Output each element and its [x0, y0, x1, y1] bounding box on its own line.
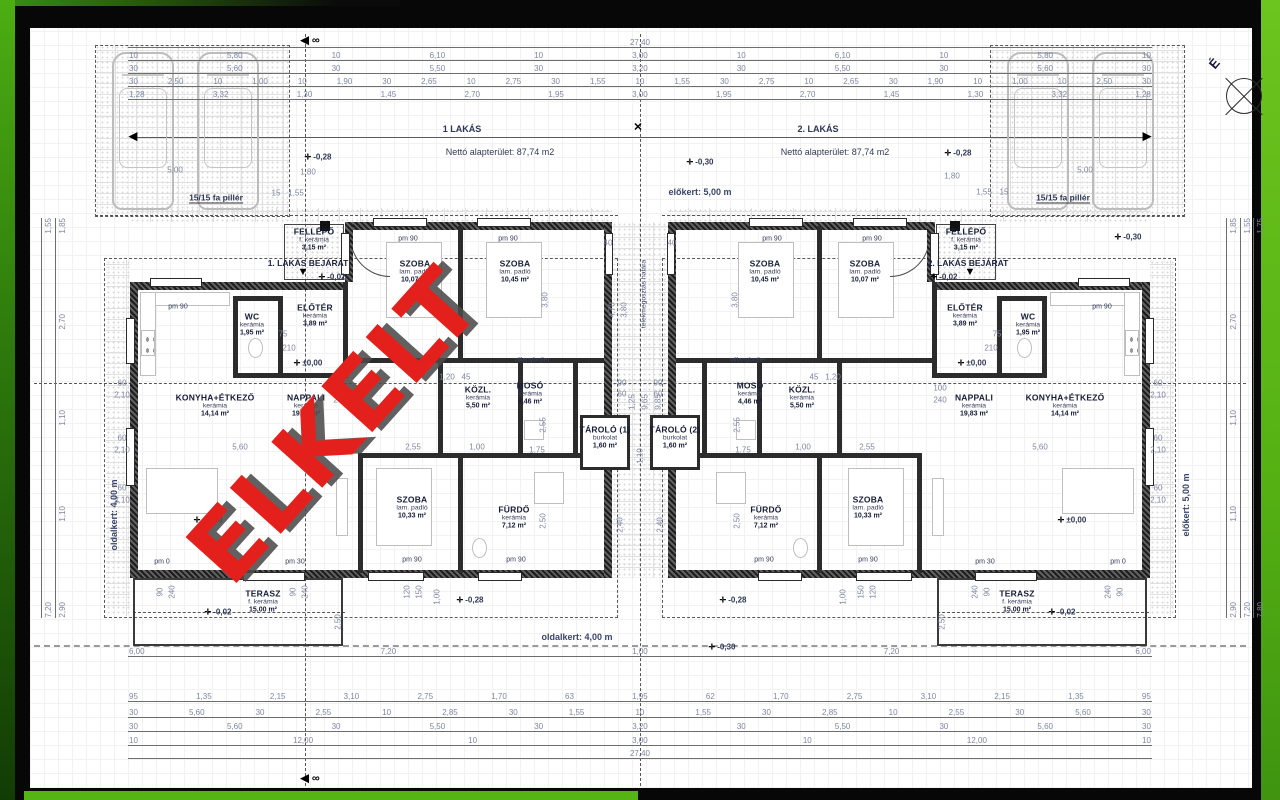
- dimension-label: 2,55: [539, 417, 548, 433]
- dimension-value: 10: [297, 77, 308, 86]
- dimension-value: 30: [533, 722, 544, 731]
- partition-wall: [518, 360, 523, 456]
- dimension-value: 30: [938, 64, 949, 73]
- dimension-label: 9,85: [654, 394, 663, 410]
- dimension-value: 1,10: [58, 410, 67, 426]
- dimension-value: 30: [331, 722, 342, 731]
- dimension-value: 2,65: [842, 77, 860, 86]
- level-marker: ✛-0,28: [305, 153, 332, 162]
- dimension-value: 2,85: [821, 708, 839, 717]
- furniture: [1062, 468, 1134, 514]
- parapet-label: pm 90: [858, 557, 877, 564]
- level-marker: ✛±0,00: [958, 359, 987, 368]
- level-cross-icon: ✛: [709, 643, 716, 652]
- dimension-label: 90: [654, 379, 663, 388]
- dimension-value: 10: [128, 51, 139, 60]
- window: [853, 218, 907, 227]
- dimension-value: 5,50: [429, 722, 447, 731]
- dimension-label: 1,20: [825, 373, 841, 382]
- room-floor: kerámia: [750, 515, 781, 523]
- parapet-label: pm 90: [762, 236, 781, 243]
- dimension-label: 90: [289, 588, 298, 597]
- dimension-label: 90: [618, 379, 627, 388]
- room-floor: lam. padló: [849, 269, 880, 277]
- room-label: MOSÓkerámia4,46 m²: [517, 381, 544, 408]
- room-floor: f. kerámia: [946, 237, 987, 245]
- dimension-label: 240: [301, 585, 310, 598]
- dimension-value: 2,70: [463, 90, 481, 99]
- dimension-value: 2,75: [416, 692, 434, 701]
- window: [1078, 278, 1130, 287]
- dimension-label: 1,00: [839, 589, 848, 605]
- level-value: ±0,00: [1066, 516, 1086, 525]
- site-label: villanybojler: [514, 357, 550, 364]
- room-area: 7,12 m²: [498, 523, 529, 531]
- partition-wall: [458, 453, 463, 573]
- level-value: -0,28: [465, 596, 483, 605]
- room-floor: lam. padló: [749, 269, 780, 277]
- window: [1145, 318, 1154, 364]
- room-area: 5,50 m²: [789, 403, 816, 411]
- room-name: WC: [240, 312, 264, 322]
- dimension-label: 2,50: [733, 513, 742, 529]
- dimension-value: 5,50: [834, 722, 852, 731]
- room-floor: lam. padló: [852, 505, 883, 513]
- level-cross-icon: ✛: [457, 596, 464, 605]
- dimension-value: 30: [128, 708, 139, 717]
- level-value: -0,30: [717, 643, 735, 652]
- room-floor: kerámia: [240, 322, 264, 330]
- site-label: villanybojler: [730, 357, 766, 364]
- dimension-value: 10: [635, 77, 646, 86]
- dimension-label: 15: [272, 189, 281, 198]
- dimension-label: 90: [1116, 588, 1125, 597]
- room-name: ELŐTÉR: [947, 303, 983, 313]
- dimension-row: 305,60302,55102,85301,55101,55302,85102,…: [128, 706, 1152, 718]
- dimension-column: 1,557,20: [41, 218, 54, 618]
- room-name: SZOBA: [849, 259, 880, 269]
- partition-wall: [233, 296, 283, 301]
- dimension-label: 3,80: [541, 292, 550, 308]
- level-value: -0,02: [939, 273, 957, 282]
- dimension-label: 1,75: [735, 446, 751, 455]
- dimension-label: 60: [118, 379, 127, 388]
- dimension-value: 5,60: [1074, 708, 1092, 717]
- level-marker: ✛-0,30: [1115, 233, 1142, 242]
- room-floor: kerámia: [737, 391, 764, 399]
- dimension-value: 5,60: [1036, 64, 1054, 73]
- dimension-label: 60: [618, 390, 627, 399]
- dimension-value: 2,50: [167, 77, 185, 86]
- window: [368, 572, 424, 581]
- dimension-value: 2,55: [315, 708, 333, 717]
- dimension-row: 27,40: [128, 36, 1152, 48]
- room-label: SZOBAlam. padló10,33 m²: [396, 495, 427, 522]
- room-name: FÜRDŐ: [498, 505, 529, 515]
- window: [126, 428, 135, 486]
- room-label: MOSÓkerámia4,46 m²: [737, 381, 764, 408]
- dimension-value: 1,10: [1229, 410, 1238, 426]
- partition-wall: [932, 282, 937, 378]
- frame-green-top: [0, 0, 400, 6]
- site-label: 15/15 fa pillér: [1036, 193, 1090, 204]
- dimension-label: 2,10: [1150, 496, 1166, 505]
- dimension-value: 95: [128, 692, 139, 701]
- dimension-value: 2,75: [846, 692, 864, 701]
- room-floor: kerámia: [955, 403, 993, 411]
- dimension-value: 10: [212, 77, 223, 86]
- dimension-value: 10: [1057, 77, 1068, 86]
- room-name: FELLÉPŐ: [294, 227, 335, 237]
- room-name: TÁROLÓ (1): [580, 425, 631, 435]
- dimension-value: 10: [938, 51, 949, 60]
- dimension-value: 1,55: [673, 77, 691, 86]
- partition-wall: [917, 453, 922, 573]
- dimension-row: 302,50101,00101,90302,65102,75301,55101,…: [128, 75, 1152, 87]
- dimension-value: 10: [888, 708, 899, 717]
- level-cross-icon: ✛: [1049, 608, 1056, 617]
- dimension-label: 150: [857, 585, 866, 598]
- dimension-label: 60: [118, 434, 127, 443]
- room-floor: burkolat: [650, 435, 701, 443]
- room-area: 3,15 m²: [946, 245, 987, 253]
- dimension-label: 1,80: [300, 168, 316, 177]
- level-marker: ✛-0,28: [720, 596, 747, 605]
- dimension-row: 105,80106,10103,00106,10105,8010: [128, 49, 1152, 61]
- dimension-value: 30: [381, 77, 392, 86]
- dimension-value: 1,00: [631, 647, 649, 656]
- dimension-value: 30: [1141, 722, 1152, 731]
- dimension-value: 5,60: [226, 64, 244, 73]
- room-area: 19,83 m²: [955, 411, 993, 419]
- dimension-value: 12,00: [966, 736, 988, 745]
- dimension-value: 2,85: [441, 708, 459, 717]
- furniture: [932, 478, 944, 536]
- dimension-row: 6,007,201,007,206,00: [128, 645, 1152, 657]
- room-label: KONYHA+ÉTKEZŐkerámia14,14 m²: [1026, 393, 1105, 420]
- room-label: TÁROLÓ (2)burkolat1,60 m²: [650, 425, 701, 452]
- room-label: ELŐTÉRkerámia3,89 m²: [947, 303, 983, 330]
- room-name: MOSÓ: [737, 381, 764, 391]
- room-floor: kerámia: [1016, 322, 1040, 330]
- furniture: [716, 472, 746, 504]
- dimension-value: 6,00: [128, 647, 146, 656]
- dimension-label: 40: [604, 239, 613, 248]
- level-marker: ✛-0,28: [457, 596, 484, 605]
- room-floor: kerámia: [1026, 403, 1105, 411]
- room-floor: kerámia: [947, 313, 983, 321]
- window: [749, 218, 803, 227]
- partition-wall: [933, 373, 1047, 378]
- parapet-label: pm 90: [506, 557, 525, 564]
- room-floor: kerámia: [176, 403, 255, 411]
- partition-wall: [757, 360, 762, 456]
- dimension-value: 10: [466, 77, 477, 86]
- dimension-value: 10: [803, 77, 814, 86]
- dimension-label: 1,00: [469, 443, 485, 452]
- partition-wall: [676, 453, 922, 458]
- frame-green-left-strip: [0, 0, 15, 800]
- dimension-label: 240: [933, 396, 946, 405]
- window: [758, 572, 802, 581]
- dimension-value: 5,60: [226, 722, 244, 731]
- dimension-label: 45: [810, 373, 819, 382]
- dimension-value: 1,55: [1243, 218, 1252, 234]
- wall-segment: [604, 222, 612, 578]
- dimension-value: 1,10: [1229, 506, 1238, 522]
- window: [150, 278, 202, 287]
- room-floor: kerámia: [297, 313, 333, 321]
- dimension-value: 30: [1141, 77, 1152, 86]
- site-label: ▶: [1143, 130, 1151, 143]
- dimension-value: 3,00: [631, 51, 649, 60]
- level-cross-icon: ✛: [720, 596, 727, 605]
- dimension-row: 305,60305,50303,20305,50305,6030: [128, 62, 1152, 74]
- parapet-label: pm 0: [1110, 559, 1126, 566]
- level-marker: ✛-0,02: [931, 273, 958, 282]
- dimension-value: 2,50: [1096, 77, 1114, 86]
- unit-header: 1 LAKÁS: [443, 124, 482, 134]
- dimension-label: 2,10: [1150, 391, 1166, 400]
- dimension-value: 3,00: [631, 736, 649, 745]
- dimension-value: 2,70: [1229, 314, 1238, 330]
- level-marker: ✛-0,30: [709, 643, 736, 652]
- dimension-label: 2,40: [656, 517, 665, 533]
- site-label: 15/15 fa pillér: [189, 193, 243, 204]
- dimension-value: 10: [1141, 736, 1152, 745]
- dimension-value: 7,20: [44, 602, 53, 618]
- partition-wall: [676, 358, 935, 363]
- level-value: -0,30: [1123, 233, 1141, 242]
- dimension-value: 1,00: [251, 77, 269, 86]
- dimension-value: 10: [972, 77, 983, 86]
- dimension-row: 1,283,321,301,452,701,953,001,952,701,45…: [128, 88, 1152, 100]
- dimension-value: 6,10: [834, 51, 852, 60]
- dimension-value: 2,15: [269, 692, 287, 701]
- level-marker: ✛-0,30: [687, 158, 714, 167]
- room-area: 3,15 m²: [294, 245, 335, 253]
- dimension-label: 40: [668, 239, 677, 248]
- dimension-row: 27,40: [128, 747, 1152, 759]
- room-label: SZOBAlam. padló10,45 m²: [749, 259, 780, 286]
- toilet: [472, 538, 487, 558]
- room-label: TÁROLÓ (1)burkolat1,60 m²: [580, 425, 631, 452]
- site-label: ◀ ∞: [300, 34, 319, 47]
- dimension-value: 95: [1141, 692, 1152, 701]
- partition-wall: [817, 453, 822, 573]
- dimension-label: 2,40: [616, 517, 625, 533]
- dimension-label: 75: [993, 330, 1002, 339]
- screenshot-root: { "frame": {"left_green_top": "#4cae13",…: [0, 0, 1280, 800]
- site-label: előkert: 5,00 m: [668, 187, 731, 197]
- partition-wall: [997, 296, 1047, 301]
- dimension-value: 10: [381, 708, 392, 717]
- dimension-label: 100: [933, 384, 946, 393]
- entrance-label: 1. LAKÁS BEJÁRAT: [268, 258, 349, 268]
- level-marker: ✛-0,02: [319, 273, 346, 282]
- dimension-value: 5,50: [429, 64, 447, 73]
- dimension-value: 1,55: [589, 77, 607, 86]
- dimension-value: 30: [128, 722, 139, 731]
- room-label: FÜRDŐkerámia7,12 m²: [498, 505, 529, 532]
- site-label: oldalkert: 4,00 m: [541, 632, 612, 642]
- room-label: WCkerámia1,95 m²: [240, 312, 264, 339]
- level-cross-icon: ✛: [958, 359, 965, 368]
- dimension-label: 1,55: [288, 189, 304, 198]
- dimension-value: 10: [533, 51, 544, 60]
- dimension-label: 1,00: [795, 443, 811, 452]
- level-value: -0,02: [327, 273, 345, 282]
- dimension-label: 240: [1104, 585, 1113, 598]
- room-name: FELLÉPŐ: [946, 227, 987, 237]
- room-floor: f. kerámia: [999, 599, 1034, 607]
- dimension-value: 30: [331, 64, 342, 73]
- dimension-value: 30: [508, 708, 519, 717]
- dimension-value: 30: [761, 708, 772, 717]
- room-floor: f. kerámia: [294, 237, 335, 245]
- dimension-value: 1,55: [694, 708, 712, 717]
- dimension-label: 3,80: [731, 292, 740, 308]
- room-label: FÜRDŐkerámia7,12 m²: [750, 505, 781, 532]
- room-floor: burkolat: [580, 435, 631, 443]
- dimension-value: 10: [736, 51, 747, 60]
- room-label: NAPPALIkerámia19,83 m²: [955, 393, 993, 420]
- dimension-value: 1,90: [927, 77, 945, 86]
- dimension-value: 2,15: [993, 692, 1011, 701]
- room-name: TERASZ: [999, 589, 1034, 599]
- dimension-label: 240: [971, 585, 980, 598]
- dimension-value: 2,90: [1229, 602, 1238, 618]
- dimension-label: 5,00: [1077, 166, 1093, 175]
- partition-wall: [573, 360, 578, 456]
- dimension-label: 2,50: [938, 614, 947, 630]
- parapet-label: pm 90: [498, 236, 517, 243]
- site-label: ◀: [129, 130, 137, 143]
- dimension-value: 30: [736, 722, 747, 731]
- room-floor: kerámia: [517, 391, 544, 399]
- level-value: -0,28: [728, 596, 746, 605]
- dimension-value: 1,10: [58, 506, 67, 522]
- dimension-value: 27,40: [629, 749, 651, 758]
- dimension-label: 2,10: [114, 446, 130, 455]
- room-name: SZOBA: [749, 259, 780, 269]
- room-name: KONYHA+ÉTKEZŐ: [176, 393, 255, 403]
- dimension-value: 5,50: [834, 64, 852, 73]
- dimension-value: 10: [467, 736, 478, 745]
- dimension-value: 5,80: [1036, 51, 1054, 60]
- room-name: FÜRDŐ: [750, 505, 781, 515]
- level-cross-icon: ✛: [1058, 516, 1065, 525]
- unit-header: 2. LAKÁS: [797, 124, 838, 134]
- level-cross-icon: ✛: [1115, 233, 1122, 242]
- dimension-column: 1,852,701,101,102,90: [1226, 218, 1239, 618]
- level-cross-icon: ✛: [931, 273, 938, 282]
- room-name: MOSÓ: [517, 381, 544, 391]
- dimension-row: 951,352,153,102,751,70631,95621,702,753,…: [128, 690, 1152, 702]
- dimension-label: 150: [415, 585, 424, 598]
- room-area: 10,33 m²: [396, 513, 427, 521]
- room-area: 3,89 m²: [947, 321, 983, 329]
- dimension-label: 1,55: [976, 188, 992, 197]
- dimension-value: 5,80: [226, 51, 244, 60]
- dimension-label: 2,55: [733, 417, 742, 433]
- frame-green-bottom-strip: [24, 791, 638, 800]
- room-label: SZOBAlam. padló10,07 m²: [849, 259, 880, 286]
- room-area: 4,46 m²: [517, 399, 544, 407]
- site-label: ◀ ∞: [300, 772, 319, 785]
- dimension-label: 60: [1154, 434, 1163, 443]
- dimension-label: 45: [462, 373, 471, 382]
- parapet-label: pm 30: [975, 559, 994, 566]
- room-area: 15,00 m²: [245, 607, 280, 615]
- level-cross-icon: ✛: [294, 359, 301, 368]
- room-name: KÖZL.: [789, 385, 816, 395]
- window: [478, 572, 522, 581]
- dimension-value: 30: [128, 77, 139, 86]
- dimension-value: 10: [128, 736, 139, 745]
- dimension-label: 1,25: [628, 394, 637, 410]
- level-cross-icon: ✛: [687, 158, 694, 167]
- room-area: 1,60 m²: [650, 443, 701, 451]
- dimension-value: 1,35: [195, 692, 213, 701]
- dimension-value: 30: [1141, 708, 1152, 717]
- partition-wall: [817, 226, 822, 362]
- dimension-value: 30: [533, 64, 544, 73]
- dimension-value: 1,28: [128, 90, 146, 99]
- level-marker: ✛-0,02: [1049, 608, 1076, 617]
- dimension-value: 7,20: [380, 647, 398, 656]
- dimension-value: 2,70: [58, 314, 67, 330]
- window: [126, 318, 135, 364]
- room-label: KONYHA+ÉTKEZŐkerámia14,14 m²: [176, 393, 255, 420]
- room-floor: kerámia: [465, 395, 492, 403]
- partition-wall: [233, 296, 238, 374]
- level-cross-icon: ✛: [945, 149, 952, 158]
- toilet: [1017, 338, 1032, 358]
- dimension-value: 10: [1141, 51, 1152, 60]
- dimension-value: 1,90: [336, 77, 354, 86]
- dimension-value: 30: [1014, 708, 1025, 717]
- dimension-value: 6,00: [1134, 647, 1152, 656]
- dimension-value: 3,32: [212, 90, 230, 99]
- site-label: oldalkert: 4,00 m: [109, 479, 119, 550]
- room-area: 1,95 m²: [240, 330, 264, 338]
- dimension-label: 1,75: [529, 446, 545, 455]
- room-area: 14,14 m²: [176, 411, 255, 419]
- room-area: 10,33 m²: [852, 513, 883, 521]
- room-area: 5,50 m²: [465, 403, 492, 411]
- level-marker: ✛±0,00: [1058, 516, 1087, 525]
- dimension-value: 1,70: [772, 692, 790, 701]
- dimension-value: 1,95: [715, 90, 733, 99]
- dimension-value: 1,55: [568, 708, 586, 717]
- room-label: SZOBAlam. padló10,33 m²: [852, 495, 883, 522]
- room-name: KONYHA+ÉTKEZŐ: [1026, 393, 1105, 403]
- dimension-value: 1,55: [44, 218, 53, 234]
- dimension-value: 2,75: [505, 77, 523, 86]
- toilet: [248, 338, 263, 358]
- site-label: telekmegosztás határa: [641, 260, 648, 328]
- partition-wall: [702, 360, 707, 456]
- parapet-label: pm 90: [168, 304, 187, 311]
- window: [930, 233, 939, 275]
- window: [373, 218, 427, 227]
- dimension-value: 10: [634, 708, 645, 717]
- dimension-value: 7,20: [883, 647, 901, 656]
- room-name: TÁROLÓ (2): [650, 425, 701, 435]
- parapet-label: pm 90: [398, 236, 417, 243]
- dimension-value: 1,95: [631, 692, 649, 701]
